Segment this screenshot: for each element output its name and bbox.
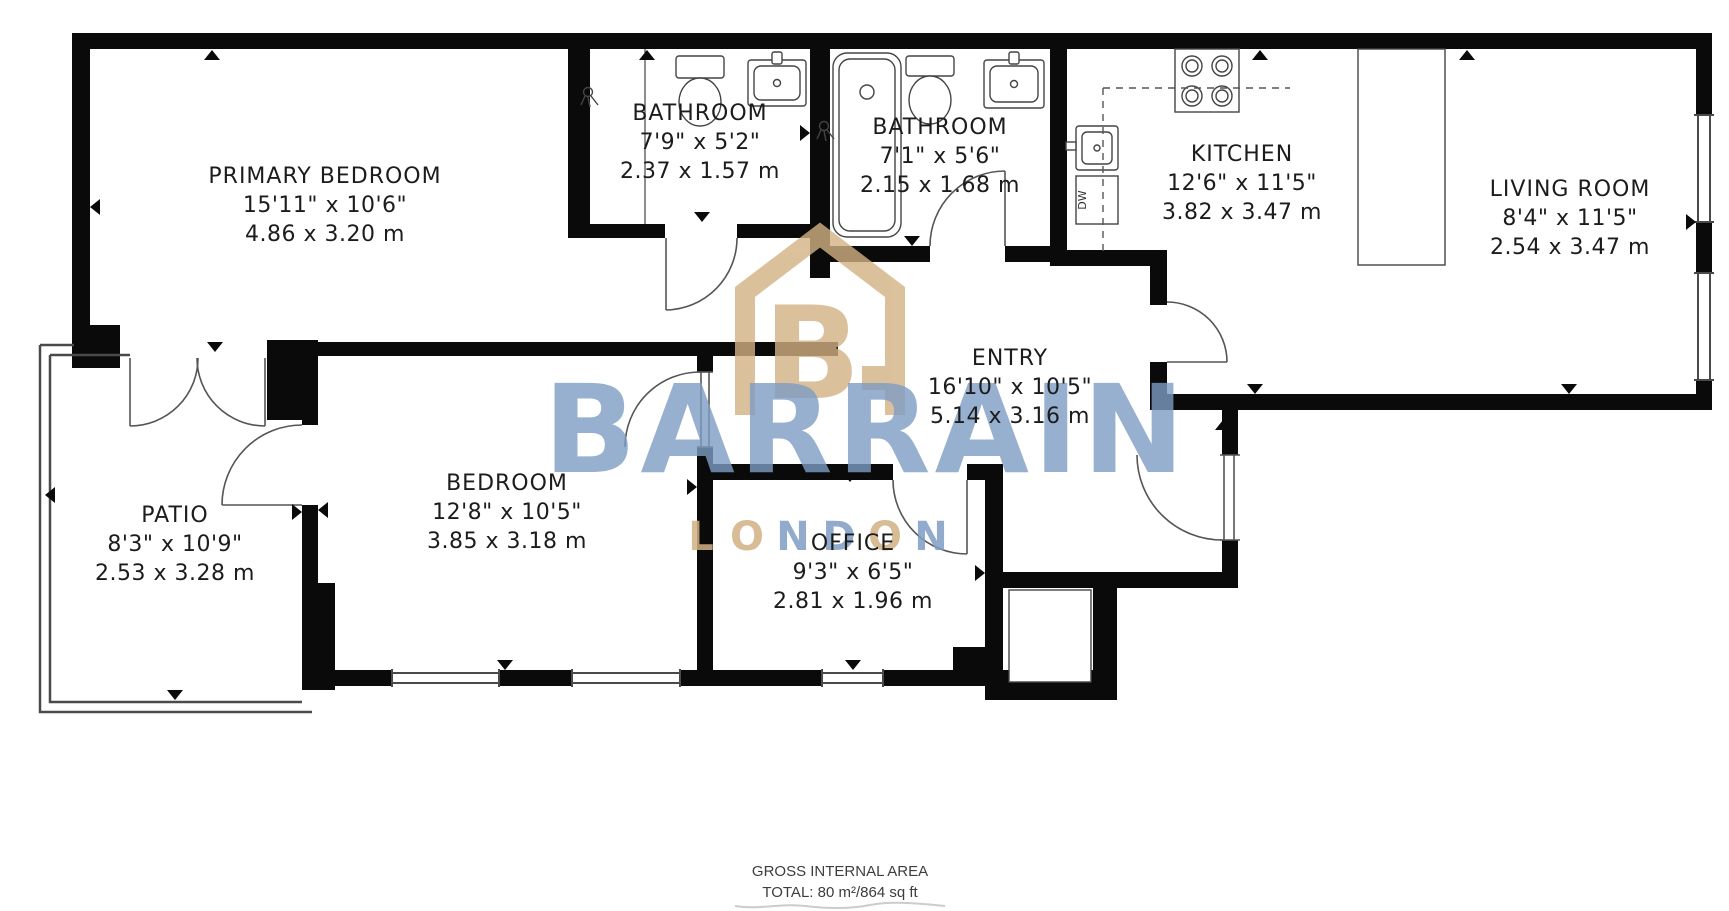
room-dimensions-imperial: 7'1" x 5'6" bbox=[860, 142, 1020, 171]
room-dimensions-metric: 2.53 x 3.28 m bbox=[95, 559, 255, 588]
room-name: BATHROOM bbox=[620, 99, 780, 128]
gross-internal-area-note: GROSS INTERNAL AREA TOTAL: 80 m²/864 sq … bbox=[752, 861, 928, 903]
room-label-office: OFFICE 9'3" x 6'5" 2.81 x 1.96 m bbox=[773, 529, 933, 616]
floorplan-page: DW bbox=[0, 0, 1729, 911]
room-name: BATHROOM bbox=[860, 113, 1020, 142]
room-label-living-room: LIVING ROOM 8'4" x 11'5" 2.54 x 3.47 m bbox=[1490, 175, 1651, 262]
room-dimensions-imperial: 15'11" x 10'6" bbox=[208, 191, 441, 220]
room-dimensions-imperial: 7'9" x 5'2" bbox=[620, 128, 780, 157]
room-dimensions-imperial: 8'3" x 10'9" bbox=[95, 530, 255, 559]
stove-icon bbox=[1175, 49, 1239, 112]
window-office bbox=[822, 669, 883, 687]
kitchen-peninsula bbox=[1358, 49, 1445, 265]
footer-line-2: TOTAL: 80 m²/864 sq ft bbox=[752, 882, 928, 903]
room-name: PRIMARY BEDROOM bbox=[208, 162, 441, 191]
room-name: PATIO bbox=[95, 501, 255, 530]
room-dimensions-metric: 3.85 x 3.18 m bbox=[427, 527, 587, 556]
room-dimensions-imperial: 9'3" x 6'5" bbox=[773, 558, 933, 587]
footer-line-1: GROSS INTERNAL AREA bbox=[752, 861, 928, 882]
door-patio-french bbox=[130, 358, 265, 426]
room-dimensions-imperial: 12'8" x 10'5" bbox=[427, 498, 587, 527]
room-dimensions-metric: 2.15 x 1.68 m bbox=[860, 171, 1020, 200]
room-dimensions-metric: 2.37 x 1.57 m bbox=[620, 157, 780, 186]
room-label-primary-bedroom: PRIMARY BEDROOM 15'11" x 10'6" 4.86 x 3.… bbox=[208, 162, 441, 249]
room-dimensions-metric: 4.86 x 3.20 m bbox=[208, 220, 441, 249]
dishwasher-icon: DW bbox=[1076, 176, 1118, 224]
room-label-patio: PATIO 8'3" x 10'9" 2.53 x 3.28 m bbox=[95, 501, 255, 588]
room-name: ENTRY bbox=[928, 344, 1092, 373]
room-dimensions-metric: 2.54 x 3.47 m bbox=[1490, 233, 1651, 262]
room-name: KITCHEN bbox=[1162, 140, 1322, 169]
sink-icon bbox=[748, 52, 806, 106]
room-label-bedroom: BEDROOM 12'8" x 10'5" 3.85 x 3.18 m bbox=[427, 469, 587, 556]
city-letter: L bbox=[688, 514, 714, 560]
room-label-kitchen: KITCHEN 12'6" x 11'5" 3.82 x 3.47 m bbox=[1162, 140, 1322, 227]
city-letter: O bbox=[730, 514, 764, 560]
room-name: OFFICE bbox=[773, 529, 933, 558]
window-bedroom-1 bbox=[392, 669, 499, 687]
room-name: BEDROOM bbox=[427, 469, 587, 498]
room-dimensions-imperial: 8'4" x 11'5" bbox=[1490, 204, 1651, 233]
window-living-right-2 bbox=[1694, 273, 1714, 380]
dishwasher-label: DW bbox=[1076, 190, 1089, 209]
room-label-bathroom-1: BATHROOM 7'9" x 5'2" 2.37 x 1.57 m bbox=[620, 99, 780, 186]
room-dimensions-metric: 3.82 x 3.47 m bbox=[1162, 198, 1322, 227]
room-label-bathroom-2: BATHROOM 7'1" x 5'6" 2.15 x 1.68 m bbox=[860, 113, 1020, 200]
sink-icon bbox=[984, 52, 1044, 108]
kitchen-sink-icon bbox=[1066, 126, 1118, 170]
room-dimensions-imperial: 16'10" x 10'5" bbox=[928, 373, 1092, 402]
room-dimensions-metric: 2.81 x 1.96 m bbox=[773, 587, 933, 616]
room-label-entry: ENTRY 16'10" x 10'5" 5.14 x 3.16 m bbox=[928, 344, 1092, 431]
door-living bbox=[1167, 302, 1227, 362]
window-bedroom-2 bbox=[572, 669, 680, 687]
door-bathroom-1 bbox=[666, 238, 737, 310]
window-living-right-1 bbox=[1694, 115, 1714, 222]
room-dimensions-imperial: 12'6" x 11'5" bbox=[1162, 169, 1322, 198]
room-name: LIVING ROOM bbox=[1490, 175, 1651, 204]
door-patio-side bbox=[222, 425, 302, 505]
entry-closet bbox=[1009, 590, 1091, 682]
footer-underline bbox=[735, 903, 945, 908]
room-dimensions-metric: 5.14 x 3.16 m bbox=[928, 402, 1092, 431]
